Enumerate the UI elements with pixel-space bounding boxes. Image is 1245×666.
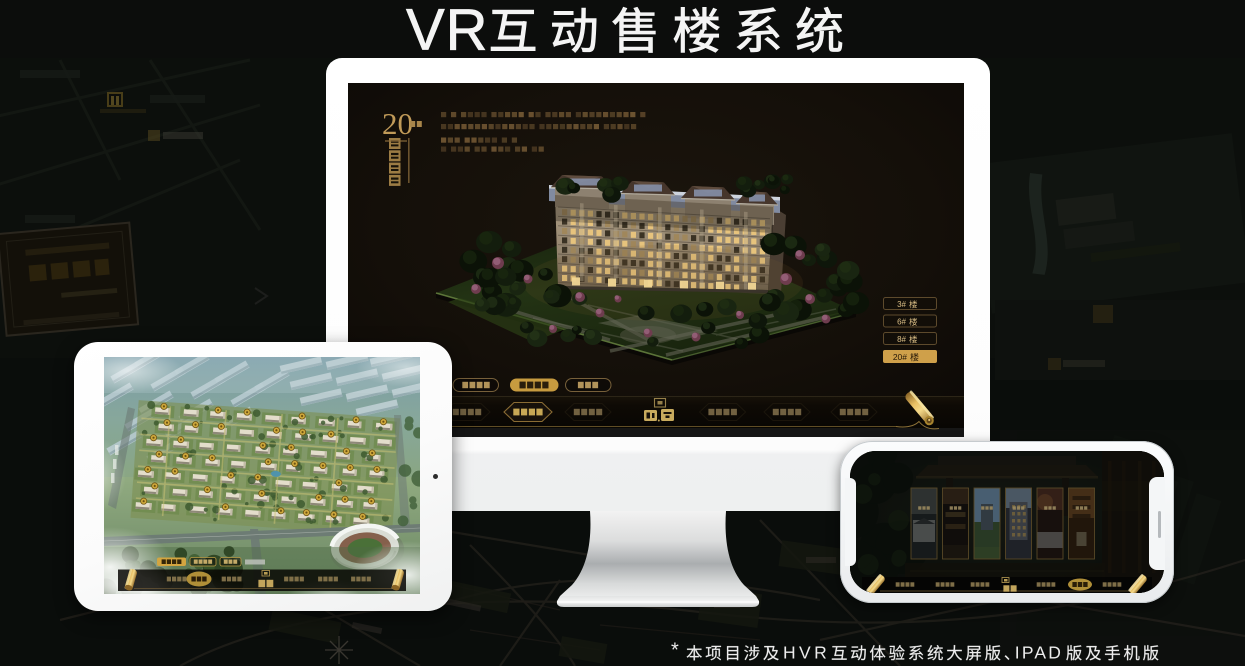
svg-text:IPAD: IPAD bbox=[1015, 643, 1063, 663]
svg-text:HVR: HVR bbox=[783, 643, 830, 663]
svg-text:*: * bbox=[671, 640, 679, 662]
svg-text:20: 20 bbox=[382, 106, 413, 141]
svg-text:VR: VR bbox=[406, 0, 489, 58]
svg-text:3#: 3# bbox=[897, 300, 906, 309]
svg-text:6#: 6# bbox=[897, 318, 906, 327]
svg-text:8#: 8# bbox=[897, 335, 906, 344]
svg-text:20#: 20# bbox=[893, 352, 907, 362]
